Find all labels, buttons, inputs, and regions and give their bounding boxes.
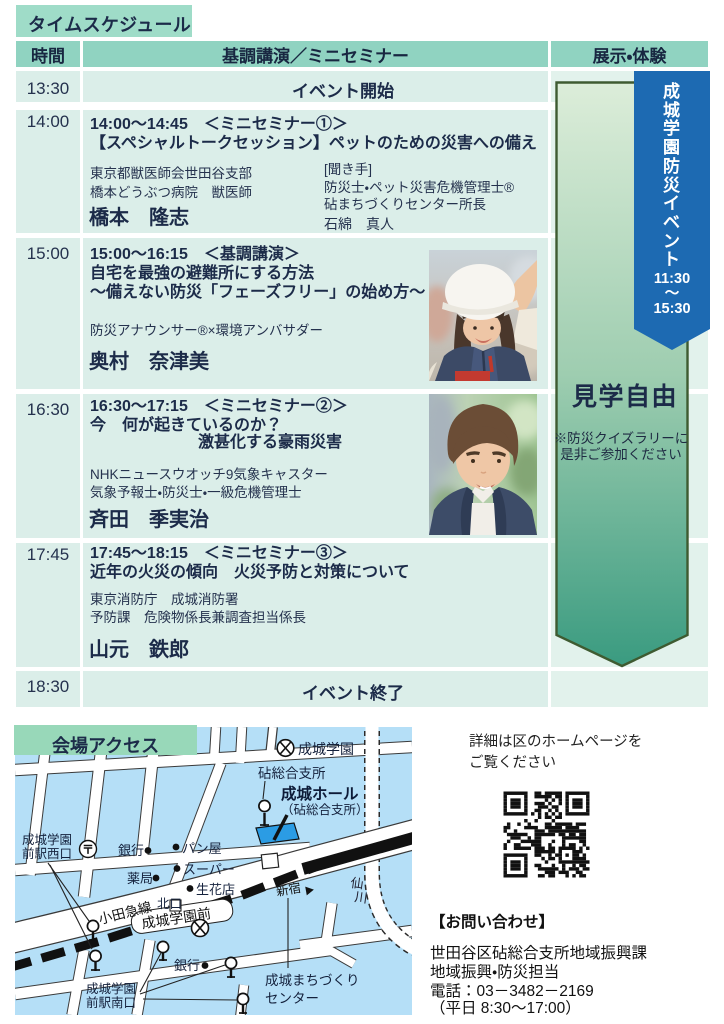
svg-text:薬局: 薬局	[127, 871, 153, 886]
svg-text:成城学園: 成城学園	[86, 981, 136, 996]
svg-text:銀行: 銀行	[118, 843, 144, 858]
svg-text:前駅西口: 前駅西口	[22, 846, 72, 861]
svg-text:成城学園: 成城学園	[22, 832, 72, 847]
svg-text:（砧総合支所）: （砧総合支所）	[281, 802, 369, 817]
svg-text:銀行: 銀行	[174, 958, 200, 973]
svg-text:スーパー: スーパー	[183, 862, 235, 877]
svg-text:砧総合支所: 砧総合支所	[258, 766, 326, 781]
svg-text:前駅南口: 前駅南口	[86, 995, 136, 1010]
svg-text:成城まちづくり: 成城まちづくり	[265, 973, 360, 988]
svg-text:成城ホール: 成城ホール	[281, 784, 359, 803]
svg-text:川: 川	[354, 889, 369, 906]
svg-text:生花店: 生花店	[196, 882, 235, 897]
svg-text:北口: 北口	[157, 897, 182, 911]
svg-text:〒: 〒	[82, 843, 94, 857]
svg-text:パン屋: パン屋	[182, 841, 222, 856]
svg-text:成城学園: 成城学園	[298, 741, 354, 757]
svg-text:センター: センター	[265, 991, 319, 1006]
